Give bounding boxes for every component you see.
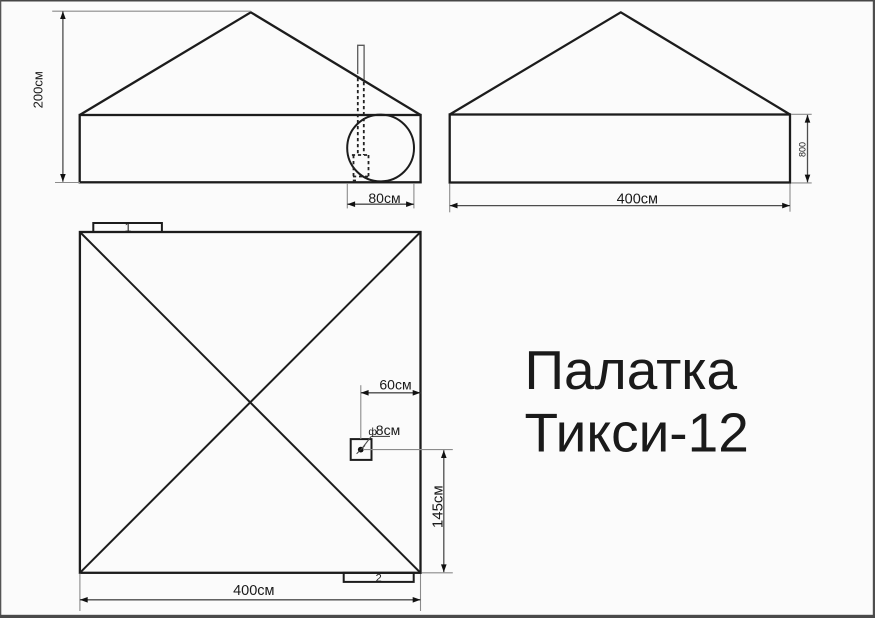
svg-text:8см: 8см [376,422,400,438]
svg-text:145см: 145см [430,485,447,528]
svg-text:200см: 200см [30,71,45,108]
svg-text:Палатка: Палатка [525,339,738,401]
svg-text:2: 2 [376,573,382,585]
svg-text:Тикси-12: Тикси-12 [525,402,749,464]
svg-text:800: 800 [797,142,807,157]
svg-text:400см: 400см [617,191,658,207]
svg-text:60см: 60см [379,377,411,393]
svg-text:1: 1 [125,221,132,235]
svg-text:80см: 80см [368,190,400,206]
svg-text:400см: 400см [233,583,274,599]
